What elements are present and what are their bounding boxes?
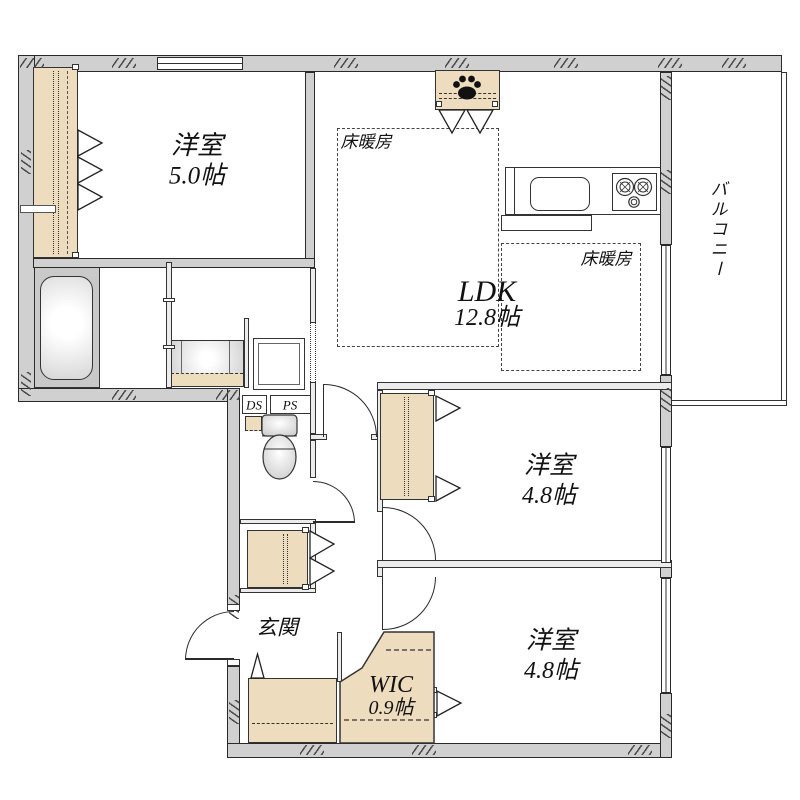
bedroom-bottom-name: 洋室 xyxy=(526,629,576,654)
window-balcony-door xyxy=(661,245,671,375)
hatch-right-3 xyxy=(661,388,671,412)
closet-top-chevron-2 xyxy=(78,157,102,183)
jamb-hall-closet-1 xyxy=(302,527,309,533)
bedroom-top-size: 5.0帖 xyxy=(169,164,225,189)
jamb-closet-top-2 xyxy=(72,252,79,258)
jamb-closet-top-1 xyxy=(72,64,79,70)
closet-pole-line-1 xyxy=(53,71,54,254)
pipe-space-label: PS xyxy=(283,399,297,412)
jamb-closet-mid-1 xyxy=(428,390,435,396)
entrance-step-mark xyxy=(251,654,264,678)
window-bedroom-bottom xyxy=(661,578,671,693)
closet-mid-pole-1 xyxy=(404,397,405,496)
wall-hall-d xyxy=(310,440,316,478)
closet-mid-pole-2 xyxy=(408,397,409,496)
jamb-pet-2 xyxy=(492,101,498,107)
bathtub xyxy=(40,276,93,380)
bedroom-top-name: 洋室 xyxy=(171,133,223,159)
wall-washer xyxy=(244,318,249,388)
hatch-right-1 xyxy=(661,76,671,100)
pet-storage-line-2 xyxy=(439,98,496,99)
hatch-left-1 xyxy=(21,150,31,174)
balcony-railing-bottom xyxy=(666,400,787,406)
hatch-top-1 xyxy=(20,58,44,68)
bedroom-mid-door-arc xyxy=(383,507,436,560)
entrance-door-arc xyxy=(185,611,234,660)
wall-hall-a xyxy=(310,268,316,323)
washbasin-counter xyxy=(171,373,243,386)
kitchen-sink xyxy=(530,177,590,211)
wall-left-lower-a xyxy=(227,388,240,611)
shoe-cabinet-line xyxy=(252,723,333,724)
window-bedroom-mid xyxy=(661,447,671,563)
ldk-door-arc xyxy=(324,384,377,437)
hatch-top-4 xyxy=(445,58,469,68)
duct-space-label: DS xyxy=(246,399,262,412)
wall-bath xyxy=(166,262,172,388)
wic-chevron xyxy=(437,691,461,716)
jamb-wic-2 xyxy=(430,712,437,718)
closet-shelf-notch xyxy=(20,205,56,213)
jamb-closet-mid-2 xyxy=(428,496,435,502)
floor-heating-label-1: 床暖房 xyxy=(341,134,392,151)
wall-bedroom1-bottom xyxy=(33,258,315,268)
hatch-top-5 xyxy=(554,58,578,68)
kitchen-ledge xyxy=(501,215,592,231)
window-top xyxy=(157,57,243,70)
closet-mid-chevron-1 xyxy=(436,396,460,421)
closet-top-chevron-3 xyxy=(78,184,102,210)
washroom-sliding-door xyxy=(310,323,316,382)
bath-door-jamb-bottom xyxy=(163,345,175,349)
floor-heating-label-2: 床暖房 xyxy=(581,251,632,268)
hall-closet xyxy=(247,530,308,588)
ldk-size: 12.8帖 xyxy=(454,306,520,330)
toilet-door-leaf xyxy=(313,521,355,523)
bedroom-mid-door-leaf xyxy=(382,507,384,560)
wall-toilet-bottom xyxy=(240,519,316,524)
entrance-label: 玄関 xyxy=(256,618,298,639)
jamb-pet-1 xyxy=(436,101,442,107)
wall-hall-b xyxy=(310,382,316,434)
closet-shelf-line xyxy=(67,71,68,254)
closet-top-chevron-1 xyxy=(78,130,102,156)
pet-storage-line-1 xyxy=(439,93,496,94)
bedroom-mid-size: 4.8帖 xyxy=(522,484,576,508)
jamb-entrance-2 xyxy=(227,659,240,666)
wall-entrance-step xyxy=(337,632,342,682)
ldk-name: LDK xyxy=(458,277,516,307)
toilet-door-arc xyxy=(313,481,355,523)
washbasin-divider-right xyxy=(229,341,230,374)
closet-bedroom-mid xyxy=(380,393,434,500)
stove-box xyxy=(612,173,657,211)
bedroom-mid-name: 洋室 xyxy=(524,454,574,479)
floor-plan: 洋室 5.0帖 LDK 12.8帖 床暖房 床暖房 洋室 4.8帖 洋室 4.8… xyxy=(0,0,800,800)
bedroom-bottom-door-arc xyxy=(383,577,436,630)
hatch-left-2 xyxy=(21,372,31,396)
bath-floor-line xyxy=(99,262,100,388)
hatch-top-6 xyxy=(658,58,682,68)
washbasin-divider-left xyxy=(181,341,182,374)
wic-name: WIC xyxy=(369,673,413,697)
jamb-wic-1 xyxy=(430,687,437,693)
closet-mid-chevron-2 xyxy=(436,476,460,501)
ldk-door-leaf xyxy=(323,384,325,437)
kitchen-counter-end xyxy=(514,168,515,214)
wall-bottom xyxy=(227,743,672,758)
pet-storage xyxy=(435,70,500,110)
wall-between-bedrooms xyxy=(377,560,672,568)
hatch-mid-1 xyxy=(112,390,136,400)
hall-closet-pole-2 xyxy=(287,534,288,584)
hatch-right-4 xyxy=(661,714,671,738)
toilet-shelf xyxy=(245,416,262,431)
washbasin xyxy=(170,340,244,387)
balcony-railing-right xyxy=(781,72,787,406)
hatch-mid-2 xyxy=(216,390,240,400)
wic-size: 0.9帖 xyxy=(369,698,414,718)
balcony-label: バルコニー xyxy=(709,180,726,280)
wall-hall-e xyxy=(310,521,316,593)
bedroom-bottom-door-leaf xyxy=(382,577,384,630)
toilet-icon xyxy=(262,415,297,479)
washer-pan xyxy=(253,338,305,390)
closet-pole-line-2 xyxy=(58,71,59,254)
hall-closet-pole-1 xyxy=(283,534,284,584)
washer-pan-inner xyxy=(258,343,300,385)
hatch-top-3 xyxy=(334,58,358,68)
hatch-leftlow-2 xyxy=(229,700,239,724)
hatch-bottom-3 xyxy=(628,745,652,755)
wall-bedroom1-right xyxy=(305,72,315,268)
closet-bedroom-top xyxy=(33,67,78,258)
hatch-right-2 xyxy=(661,170,671,194)
bath-door-jamb-top xyxy=(163,298,175,302)
wall-ldk-south xyxy=(377,382,672,390)
hatch-top-2 xyxy=(112,58,136,68)
bedroom-bottom-size: 4.8帖 xyxy=(524,659,578,683)
shoe-cabinet xyxy=(248,678,337,743)
jamb-hall-closet-2 xyxy=(302,584,309,590)
hatch-top-7 xyxy=(722,58,746,68)
hatch-bottom-2 xyxy=(412,745,436,755)
jamb-entrance-1 xyxy=(227,604,240,611)
hatch-bottom-1 xyxy=(300,745,324,755)
